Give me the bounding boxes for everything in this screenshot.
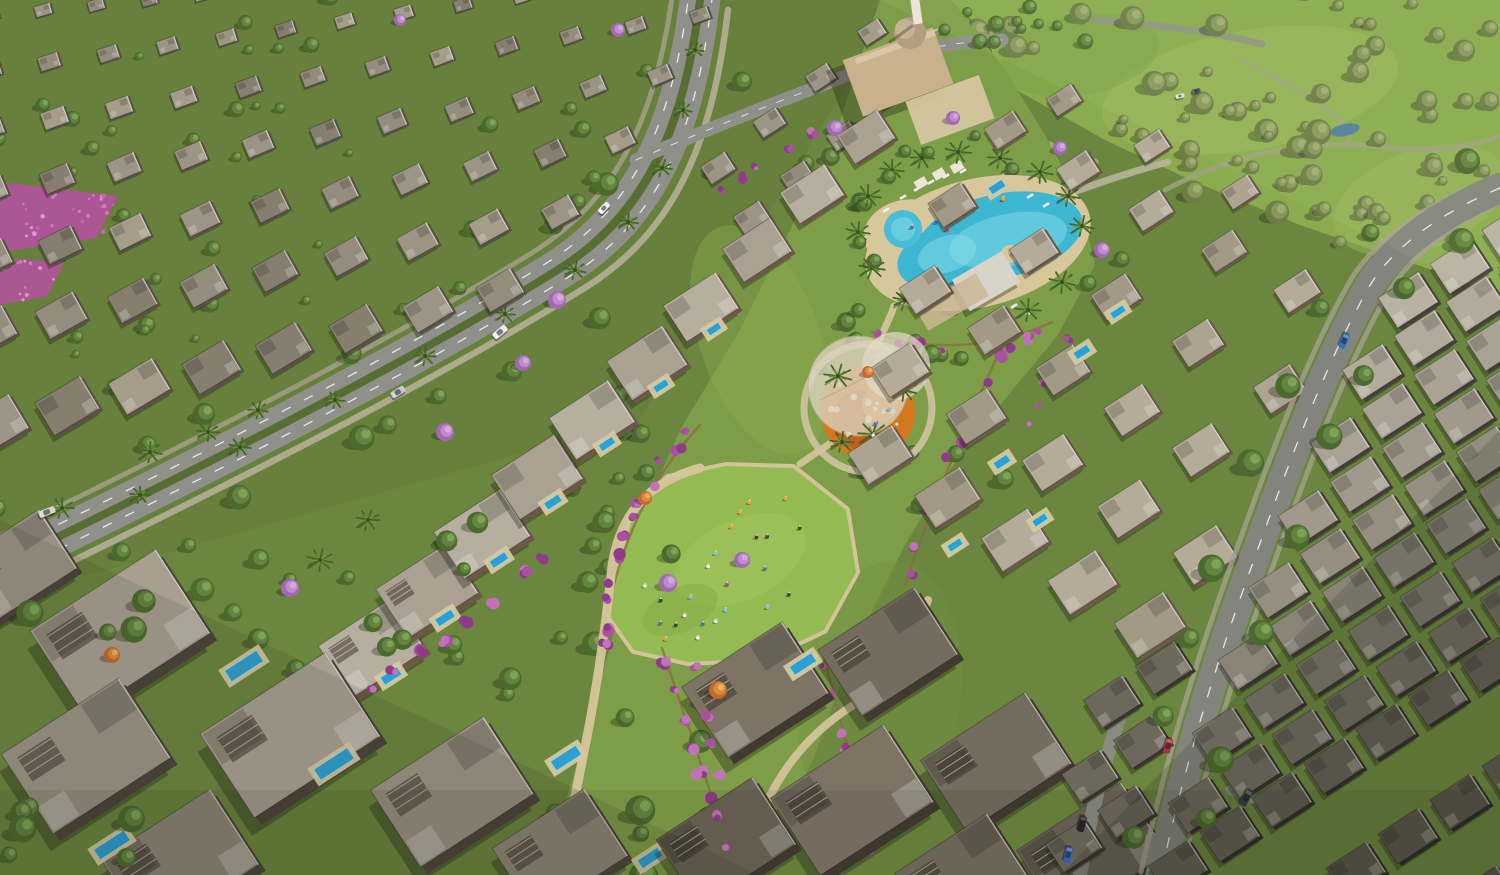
aerial-scene-canvas (0, 0, 1500, 875)
aerial-master-plan-render (0, 0, 1500, 875)
shade-bottom-strip (0, 790, 1500, 875)
